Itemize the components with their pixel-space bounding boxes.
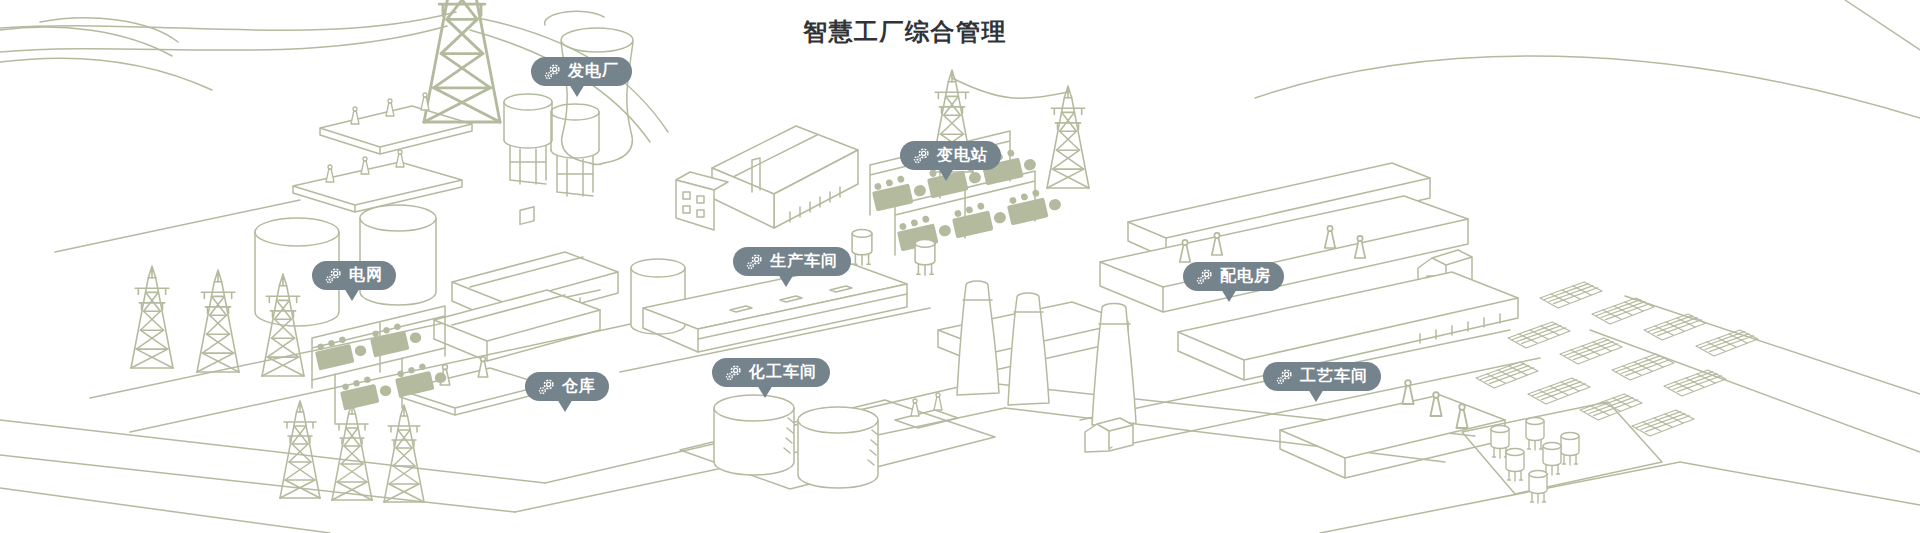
gears-icon (913, 147, 930, 164)
badge-substation[interactable]: 变电站 (900, 141, 1001, 170)
badge-label: 发电厂 (568, 61, 619, 82)
badge-label: 仓库 (562, 376, 596, 397)
badge-chemical-workshop[interactable]: 化工车间 (712, 358, 830, 387)
badge-label: 变电站 (937, 145, 988, 166)
gears-icon (325, 267, 342, 284)
gears-icon (1276, 368, 1293, 385)
chimney (938, 281, 1136, 452)
gears-icon (538, 378, 555, 395)
gears-icon (746, 253, 763, 270)
warehouse-shed (434, 207, 618, 361)
gears-icon (544, 63, 561, 80)
badge-label: 工艺车间 (1300, 366, 1368, 387)
chemical-tanks (714, 393, 958, 488)
small-tank (915, 240, 935, 276)
cooling-tower (545, 11, 633, 164)
silo-hopper (504, 94, 599, 196)
badge-power-grid[interactable]: 电网 (312, 261, 396, 290)
badge-warehouse[interactable]: 仓库 (525, 372, 609, 401)
badge-label: 生产车间 (770, 251, 838, 272)
badge-power-plant[interactable]: 发电厂 (531, 57, 632, 86)
gears-icon (725, 364, 742, 381)
factory-hall (676, 126, 858, 230)
badge-label: 电网 (349, 265, 383, 286)
badge-production-workshop[interactable]: 生产车间 (733, 247, 851, 276)
small-tank (852, 230, 872, 266)
badge-distribution-room[interactable]: 配电房 (1183, 262, 1284, 291)
factory-illustration (0, 0, 1920, 533)
right-workshops (1100, 163, 1518, 478)
gears-icon (1196, 268, 1213, 285)
smart-factory-dashboard: 智慧工厂综合管理 发电厂 变电站 电网 生产车间 配电房 仓库 (0, 0, 1920, 533)
badge-label: 化工车间 (749, 362, 817, 383)
badge-process-workshop[interactable]: 工艺车间 (1263, 362, 1381, 391)
page-title: 智慧工厂综合管理 (803, 16, 1007, 48)
badge-label: 配电房 (1220, 266, 1271, 287)
